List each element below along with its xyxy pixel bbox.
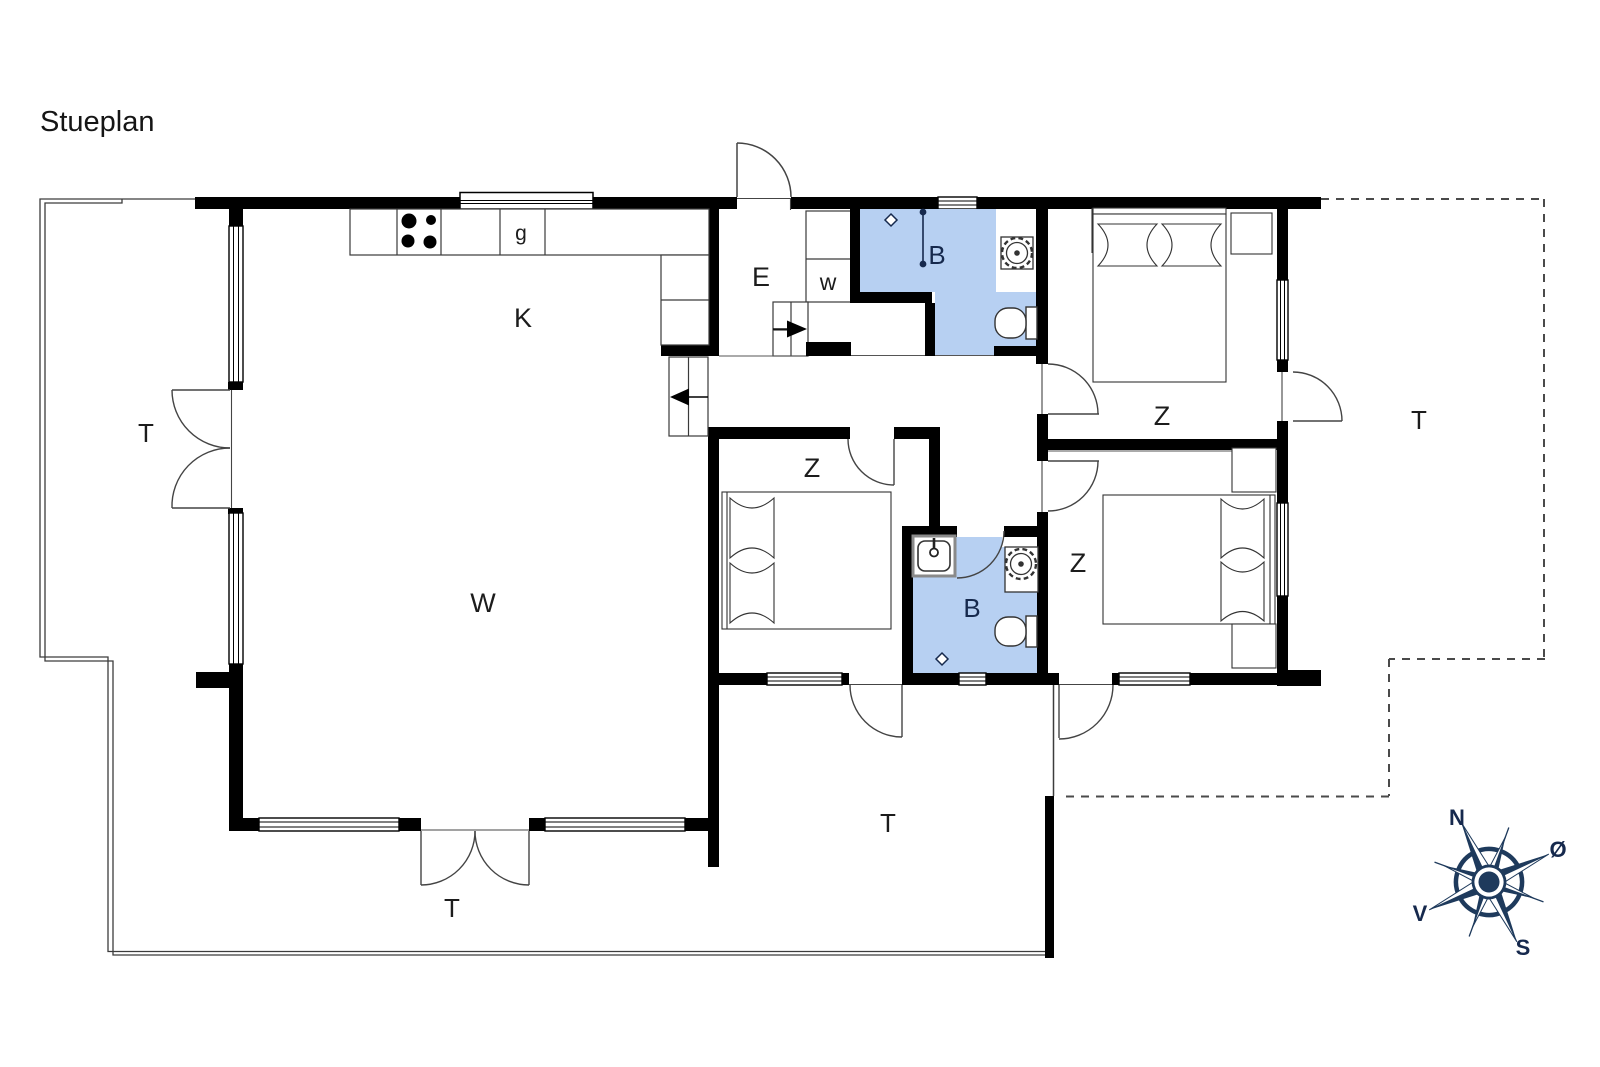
svg-text:T: T <box>880 808 896 838</box>
svg-text:Z: Z <box>1154 401 1171 431</box>
svg-text:S: S <box>1516 935 1531 960</box>
svg-text:K: K <box>514 303 532 333</box>
svg-text:T: T <box>138 418 154 448</box>
svg-text:g: g <box>515 222 527 245</box>
svg-text:E: E <box>752 262 770 292</box>
svg-text:Ø: Ø <box>1549 837 1566 862</box>
svg-text:Stueplan: Stueplan <box>40 106 155 138</box>
svg-text:T: T <box>1411 405 1427 435</box>
svg-text:V: V <box>1413 901 1428 926</box>
svg-text:W: W <box>470 588 496 618</box>
svg-text:w: w <box>819 269 837 295</box>
svg-text:B: B <box>928 240 945 270</box>
svg-text:N: N <box>1449 805 1465 830</box>
svg-text:T: T <box>444 893 460 923</box>
svg-text:B: B <box>963 593 980 623</box>
svg-text:Z: Z <box>804 453 821 483</box>
svg-text:Z: Z <box>1070 548 1087 578</box>
